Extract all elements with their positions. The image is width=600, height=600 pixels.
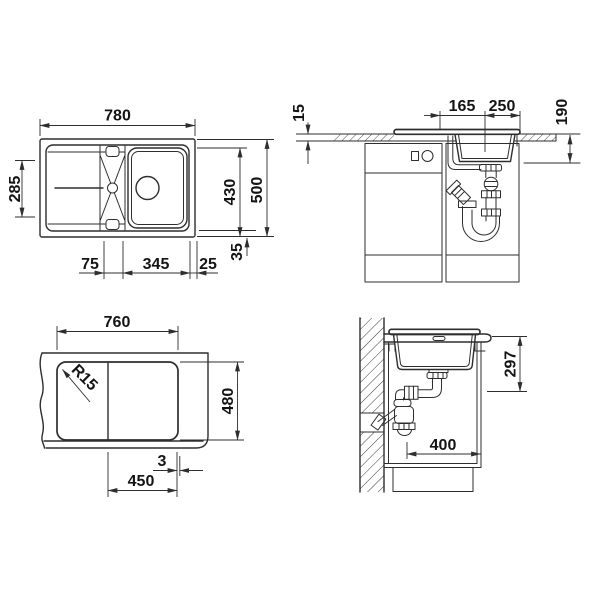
dim-right-offset: 25 [199, 256, 217, 273]
front-view: 15 165 250 190 [291, 98, 580, 282]
dim-left-offset: 75 [81, 256, 99, 273]
trap-cup [395, 407, 414, 424]
cutout-view: R15 760 480 3 450 [40, 314, 244, 497]
tap-hole-bottom [106, 220, 119, 230]
dim-overall-depth: 500 [249, 177, 266, 204]
dim-inner-depth: 430 [222, 179, 239, 206]
cabinet-left [365, 144, 442, 283]
drain-hole [136, 177, 159, 200]
top-view: 780 285 430 500 35 75 345 25 [7, 108, 274, 280]
dim-bowl-width: 345 [143, 256, 170, 273]
overflow-pipe [448, 136, 481, 170]
door-handle-knob [422, 151, 433, 162]
drain-elbow [418, 388, 442, 398]
worktop-hatch-left [333, 134, 394, 141]
pipe-coupling-side [405, 386, 419, 399]
bowl-side-outer [394, 335, 476, 370]
down-elbow [396, 390, 405, 400]
bowl-side-inner [397, 335, 473, 367]
strip-center-hole [108, 183, 118, 193]
dim-bowl-section-width: 450 [128, 473, 155, 490]
dim-depth-below-worktop: 297 [503, 351, 520, 378]
mounting-bracket-left [384, 344, 395, 351]
trap-dome [398, 430, 412, 436]
bowl-outline [128, 148, 187, 228]
dim-min-cabinet-depth: 400 [430, 437, 457, 454]
worktop-slab [42, 353, 208, 448]
technical-drawing-canvas: 780 285 430 500 35 75 345 25 [0, 0, 600, 600]
dim-bowl-depth: 190 [554, 99, 571, 126]
sink-rim-side [389, 329, 480, 334]
dim-drain-offset: 165 [449, 98, 476, 115]
bowl-inner [132, 152, 184, 225]
dishwasher-branch [446, 180, 472, 206]
side-view: 297 400 [359, 318, 527, 492]
wall-hatch [360, 318, 384, 492]
dim-cutout-width: 760 [104, 314, 131, 331]
dim-overall-width: 780 [104, 108, 131, 125]
trap-nut [394, 400, 411, 407]
door-handle-square [412, 152, 419, 161]
tap-hole-top [106, 147, 119, 157]
dim-edge-gap: 3 [158, 453, 167, 470]
sink-rim-profile [394, 130, 520, 135]
worktop-hatch-right [520, 134, 556, 141]
trap-u-inner [472, 210, 496, 235]
plinth [393, 468, 473, 492]
ball-joint [484, 177, 498, 191]
dim-drain-to-edge: 250 [489, 98, 516, 115]
dim-corner-radius: R15 [68, 361, 101, 394]
dim-cutout-depth: 480 [220, 388, 237, 415]
waste-actuator [433, 337, 445, 341]
dim-drainboard-depth: 285 [7, 176, 24, 203]
sink-dimension-drawing: 780 285 430 500 35 75 345 25 [0, 0, 600, 600]
dim-worktop-thickness: 15 [291, 104, 308, 122]
drain-flange-side [427, 373, 447, 379]
worktop-broken-edge [40, 353, 44, 448]
dim-rim-width: 35 [229, 243, 246, 261]
